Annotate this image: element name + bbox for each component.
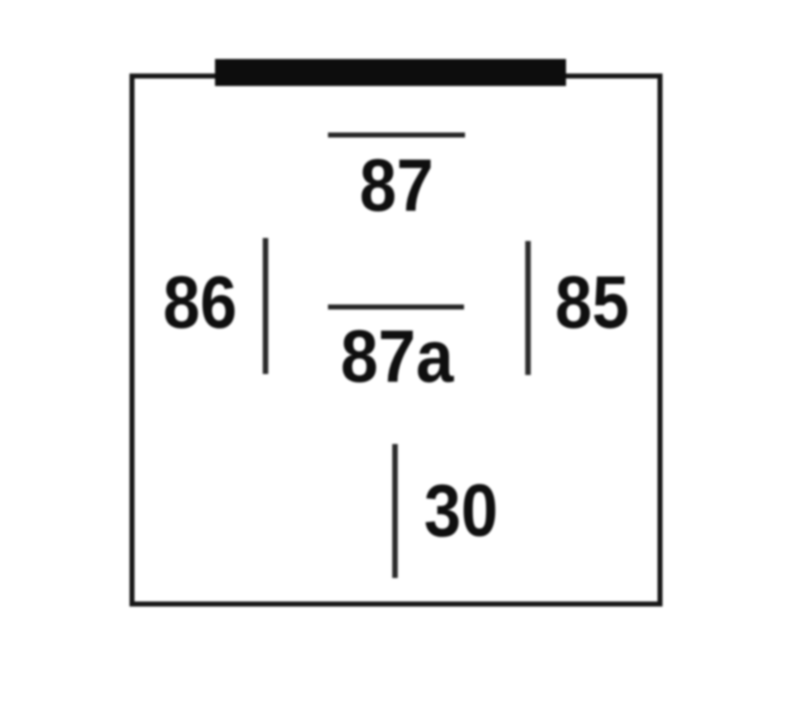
svg-text:86: 86	[163, 261, 237, 344]
svg-text:30: 30	[424, 469, 498, 552]
svg-text:87: 87	[360, 144, 434, 227]
svg-text:87a: 87a	[341, 315, 455, 398]
svg-text:85: 85	[555, 261, 629, 344]
